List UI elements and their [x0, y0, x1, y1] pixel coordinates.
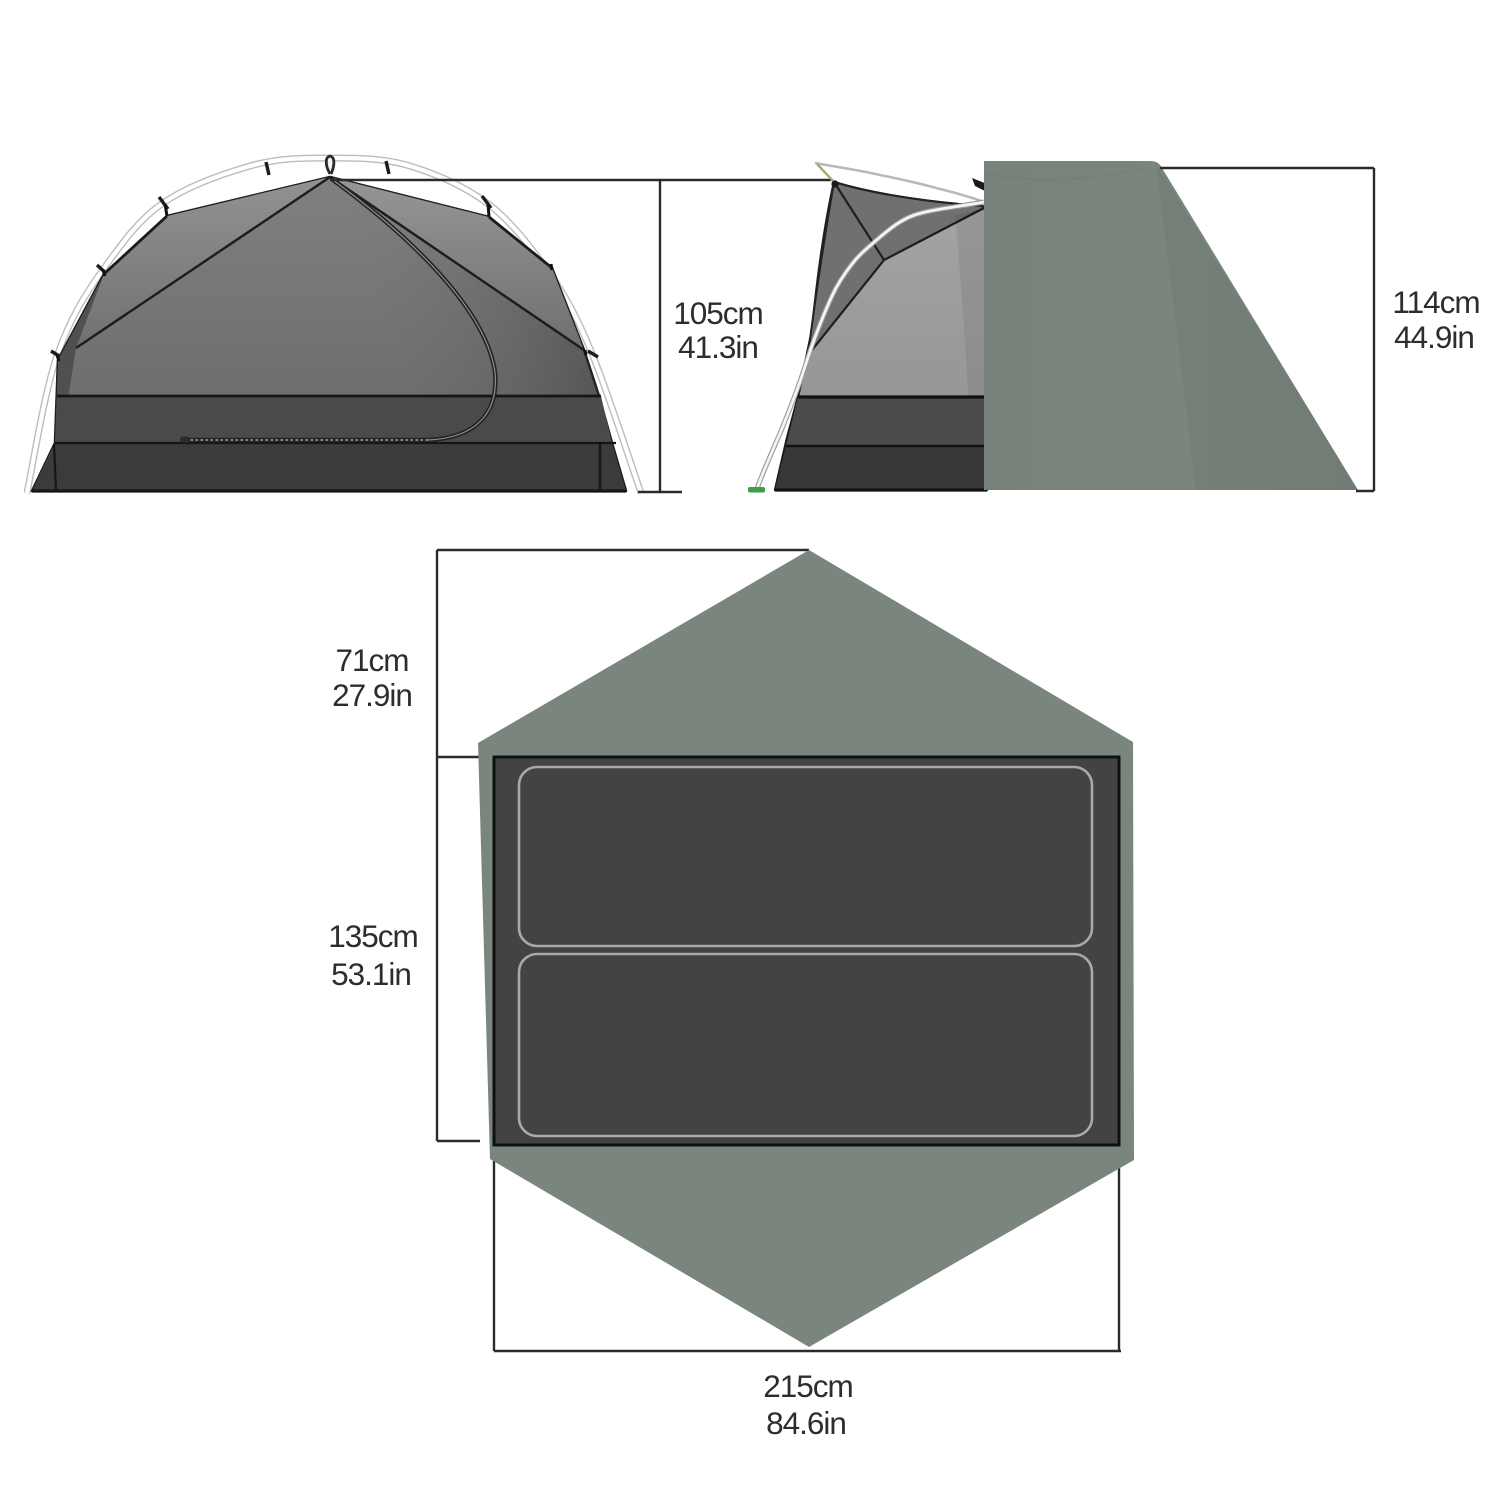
svg-text:27.9in: 27.9in — [332, 677, 412, 713]
svg-text:135cm: 135cm — [328, 918, 418, 954]
svg-text:44.9in: 44.9in — [1394, 319, 1474, 355]
svg-text:114cm: 114cm — [1392, 284, 1479, 320]
svg-text:53.1in: 53.1in — [331, 956, 411, 992]
svg-text:215cm: 215cm — [763, 1368, 853, 1404]
svg-text:84.6in: 84.6in — [766, 1405, 846, 1441]
svg-text:41.3in: 41.3in — [678, 329, 758, 365]
svg-text:71cm: 71cm — [335, 642, 408, 678]
svg-text:105cm: 105cm — [673, 295, 763, 331]
